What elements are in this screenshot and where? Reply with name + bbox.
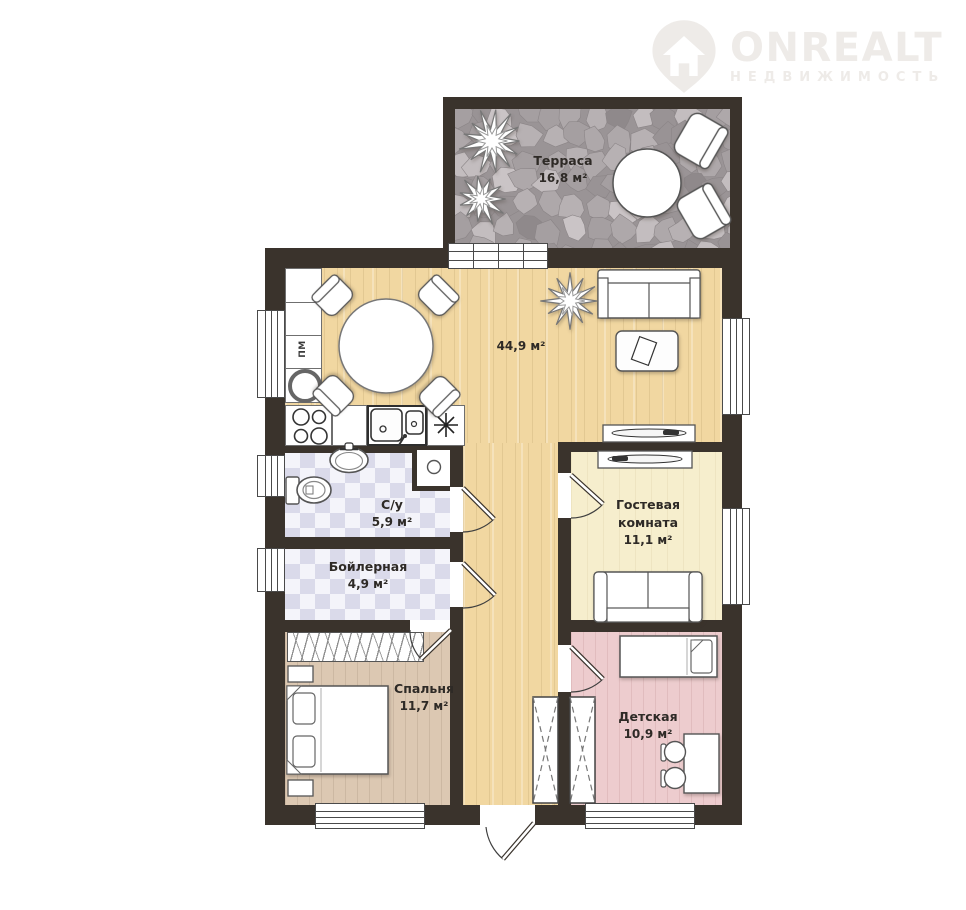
wall-bottom-3 [535, 805, 585, 825]
wall-hall-left-2 [450, 532, 463, 562]
hallway-floor [463, 443, 558, 805]
entrance-door [486, 823, 534, 859]
wall-hall-right-3 [558, 692, 571, 805]
terrace-patio-door [448, 243, 548, 269]
wall-guest-kids [558, 620, 722, 632]
terrace-label: Терраса 16,8 м² [533, 152, 592, 188]
dishwasher-label: ПМ [298, 340, 308, 358]
kitchen-window [257, 310, 285, 398]
wall-right-1 [722, 248, 742, 318]
wall-left-4 [265, 592, 285, 825]
boiler-room-area: 4,9 м² [329, 576, 408, 593]
wall-boiler-bedroom-a [285, 620, 410, 632]
boiler-room-label: Бойлерная 4,9 м² [329, 558, 408, 594]
brand-pin-house-icon [646, 16, 722, 96]
guest-room-name-line2: комната [616, 514, 680, 532]
bathroom-area: 5,9 м² [372, 514, 413, 531]
brand-name: ONREALT [730, 28, 945, 68]
bedroom-label: Спальня 11,7 м² [394, 680, 454, 716]
guest-room-name-line1: Гостевая [616, 496, 680, 514]
boiler-room-name: Бойлерная [329, 558, 408, 576]
guest-room-window [722, 508, 750, 605]
wall-hall-right-1 [558, 442, 571, 473]
bedroom-area: 11,7 м² [394, 698, 454, 715]
terrace-name: Терраса [533, 152, 592, 170]
bedroom-wardrobe [287, 632, 424, 662]
terrace-wall-right [730, 97, 742, 248]
living-room-area: 44,9 м² [497, 338, 546, 355]
bathroom-label: С/у 5,9 м² [372, 496, 413, 532]
wall-top-left-segment [265, 248, 448, 268]
living-room-window [722, 318, 750, 415]
wall-bathroom-boiler [285, 537, 463, 549]
kids-room-window [585, 803, 695, 829]
wall-top-right-segment [548, 248, 742, 268]
kitchen-counter [332, 405, 367, 446]
living-room-label: 44,9 м² [497, 338, 546, 355]
terrace-wall-top [443, 97, 742, 109]
bathroom-name: С/у [372, 496, 413, 514]
bathroom-window [257, 455, 285, 497]
brand-tagline: НЕДВИЖИМОСТЬ [730, 70, 945, 85]
kitchen-stove-cabinet [285, 405, 332, 446]
wall-bottom-1 [265, 805, 315, 825]
washing-machine [288, 369, 322, 403]
wall-living-guest [558, 442, 722, 452]
wall-left-3 [265, 497, 285, 548]
kitchen-hood-cabinet [427, 405, 465, 446]
floor-plan: ONREALT НЕДВИЖИМОСТЬ [0, 0, 966, 910]
terrace-area: 16,8 м² [533, 170, 592, 187]
wall-hall-left-1 [450, 443, 463, 487]
wall-left-1 [265, 248, 285, 310]
kitchen-sink-unit [367, 405, 427, 446]
guest-room-label: Гостевая комната 11,1 м² [616, 496, 680, 550]
bedroom-window [315, 803, 425, 829]
kids-room-name: Детская [618, 708, 677, 726]
brand-logo: ONREALT НЕДВИЖИМОСТЬ [646, 16, 945, 96]
bedroom-name: Спальня [394, 680, 454, 698]
terrace-wall-left [443, 97, 455, 248]
wall-right-3 [722, 605, 742, 825]
kids-room-label: Детская 10,9 м² [618, 708, 677, 744]
bathroom-shower-closet [412, 450, 450, 491]
wall-hall-right-2 [558, 518, 571, 645]
wall-right-2 [722, 415, 742, 508]
kids-room-area: 10,9 м² [618, 726, 677, 743]
boiler-window [257, 548, 285, 592]
wall-bottom-4 [695, 805, 742, 825]
wall-left-2 [265, 398, 285, 455]
wall-bottom-2 [425, 805, 480, 825]
guest-room-area: 11,1 м² [616, 532, 680, 549]
